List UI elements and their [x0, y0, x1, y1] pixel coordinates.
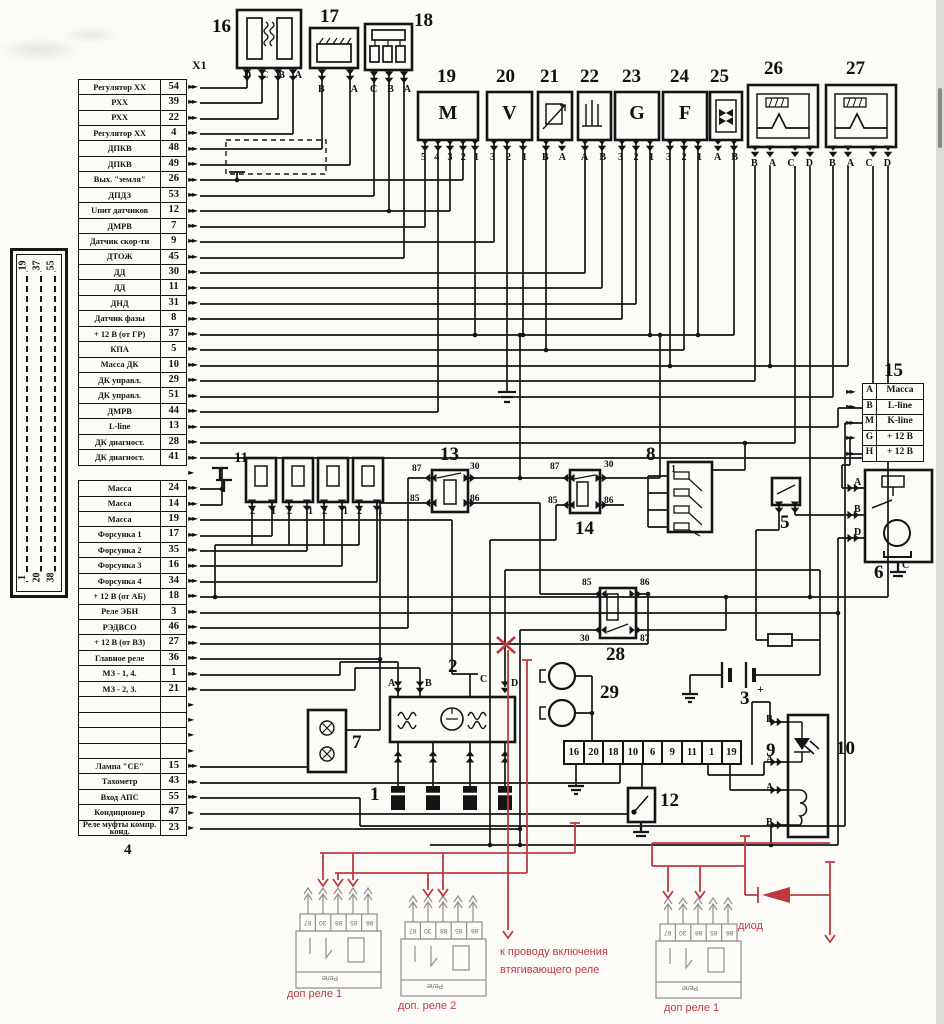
relay28-pin-86: 86 [640, 578, 650, 588]
ecu-row: Реле муфты компр. конд. 23 ► [78, 821, 202, 836]
wire-arrow-icon: ► [187, 806, 202, 821]
callout-5: 5 [780, 512, 790, 534]
ecu-row-pin: 8 [161, 310, 187, 327]
ecu-row-label: Масса [78, 511, 161, 528]
ecu-row-pin [161, 465, 187, 482]
ecu-row-label: ДК диагност. [78, 449, 161, 466]
annotation-relay1: доп реле 1 [287, 988, 342, 1000]
wire-arrow-icon: ►► [187, 559, 202, 574]
ecu-row: ДК диагност. 41 ►► [78, 451, 202, 466]
ecu-row: Тахометр 43 ►► [78, 775, 202, 790]
aux-relay-1-body-label: Реле [322, 974, 338, 981]
connector9-cell: 20 [583, 740, 605, 765]
pins-injector-4: 21 [357, 506, 383, 517]
ecu-row-pin: 3 [161, 604, 187, 621]
ecu-row: КПА 5 ►► [78, 342, 202, 357]
wire-arrow-icon: ►► [187, 481, 202, 496]
annotation-note-line2: втягивающего реле [500, 964, 599, 976]
wire-arrow-icon: ►► [187, 111, 202, 126]
ecu-row-label: Главное реле [78, 650, 161, 667]
ecu-row: ДК управл. 51 ►► [78, 389, 202, 404]
wire-arrow-icon: ► [187, 728, 202, 743]
ecu-row: ► [78, 713, 202, 728]
component-24-letter: F [663, 102, 707, 125]
ecu-row: + 12 В (от ВЗ) 27 ►► [78, 636, 202, 651]
ecu-row-label: L-line [78, 418, 161, 435]
wire-arrow-icon: ►► [187, 250, 202, 265]
ecu-row: РХХ 22 ►► [78, 111, 202, 126]
wire-arrow-icon: ►► [187, 636, 202, 651]
wire-arrow-icon: ►► [187, 497, 202, 512]
ecu-row: ДК диагност. 28 ►► [78, 435, 202, 450]
ecu-row-label: ДПКВ [78, 140, 161, 157]
ecu-row-label: Вход АПС [78, 789, 161, 806]
connector-pin-row [26, 266, 28, 582]
wire-arrow-icon: ►► [187, 234, 202, 249]
ecu-row: ► [78, 744, 202, 759]
callout-27: 27 [846, 58, 865, 80]
ecu-row: Регулятор XX 54 ►► [78, 80, 202, 95]
annotation-relay2: доп. реле 2 [398, 1000, 456, 1012]
pins-c25: AB [714, 152, 738, 163]
ecu-row: ДПДЗ 53 ►► [78, 188, 202, 203]
ecu-row-pin: 46 [161, 619, 187, 636]
wire-arrow-icon: ►► [187, 543, 202, 558]
connector9-cell: 11 [681, 740, 703, 765]
connector9-cell: 9 [661, 740, 683, 765]
ecu-row-pin: 47 [161, 804, 187, 821]
connector-num: 20 [32, 572, 43, 584]
ecu-row: Кондиционер 47 ► [78, 806, 202, 821]
ecu-row-label: Лампа "СЕ" [78, 758, 161, 775]
ecu-row-label: Датчик фазы [78, 310, 161, 327]
ecu-row: Лампа "СЕ" 15 ►► [78, 759, 202, 774]
ecu-row-pin: 41 [161, 449, 187, 466]
component-23-letter: G [615, 102, 659, 125]
ecu-row-pin: 9 [161, 233, 187, 250]
ecu-row: Масса 19 ►► [78, 512, 202, 527]
module2-pin-D: D [511, 678, 518, 689]
pins-c23: 321 [618, 152, 654, 163]
callout-22: 22 [580, 66, 599, 88]
ecu-row-label: ДПКВ [78, 156, 161, 173]
callout-20: 20 [496, 66, 515, 88]
callout-8: 8 [646, 444, 656, 466]
pump6-pin-A: A [854, 477, 861, 488]
pump6-pin-B: B [854, 504, 861, 515]
wire-arrow-icon: ► [187, 821, 202, 836]
ecu-row-pin: 10 [161, 357, 187, 374]
block15-row: ►► H + 12 В [846, 447, 924, 462]
wire-arrow-icon: ►► [187, 95, 202, 110]
pump6-pin-C: C [902, 560, 909, 571]
ecu-row-label: ДТОЖ [78, 249, 161, 266]
ecu-row-pin: 11 [161, 279, 187, 296]
relay28-pin-85: 85 [582, 578, 592, 588]
wire-arrow-icon: ►► [187, 358, 202, 373]
ecu-row-label: Форсунка 4 [78, 573, 161, 590]
callout-18: 18 [414, 10, 433, 32]
relay28-pin-30: 30 [580, 634, 590, 644]
callout-2: 2 [448, 656, 458, 678]
ecu-row: Uпит датчиков 12 ►► [78, 204, 202, 219]
wire-arrow-icon: ►► [187, 80, 202, 95]
block10-pin-B2: B [766, 817, 773, 828]
relay14-pin-85: 85 [548, 496, 558, 506]
aux-relay-2-pins: 8730888586 [405, 923, 482, 938]
ecu-row-label: Тахометр [78, 773, 161, 790]
connector-pin-row [54, 266, 56, 582]
callout-1: 1 [370, 784, 380, 806]
ecu-row: Масса 24 ►► [78, 481, 202, 496]
ecu-row-pin [161, 696, 187, 713]
ecu-row-label [78, 727, 161, 744]
ecu-row-pin: 28 [161, 434, 187, 451]
ecu-row-label [78, 696, 161, 713]
relay14-pin-87: 87 [550, 462, 560, 472]
ecu-row-label: Реле муфты компр. конд. [78, 820, 161, 837]
ecu-row-label: КПА [78, 341, 161, 358]
ecu-row-pin [161, 743, 187, 760]
wire-arrow-icon: ►► [187, 142, 202, 157]
ecu-row-pin: 23 [161, 820, 187, 837]
annotation-diode: диод [738, 920, 763, 932]
ecu-row: Датчик фазы 8 ►► [78, 312, 202, 327]
ecu-row: ► [78, 698, 202, 713]
ecu-row-label: Масса [78, 480, 161, 497]
connector9-cell: 10 [622, 740, 644, 765]
ecu-row-label: + 12 В (от ГР) [78, 326, 161, 343]
ecu-row-pin: 24 [161, 480, 187, 497]
wire-arrow-icon: ►► [187, 420, 202, 435]
callout-29: 29 [600, 682, 619, 704]
ecu-row: ДПКВ 49 ►► [78, 157, 202, 172]
ecu-row-label: ДД [78, 279, 161, 296]
wire-arrow-icon: ►► [187, 682, 202, 697]
ecu-row-label: Масса ДК [78, 357, 161, 374]
ecu-row: Форсунка 4 34 ►► [78, 574, 202, 589]
ecu-row-pin: 5 [161, 341, 187, 358]
ecu-row-label: Форсунка 1 [78, 526, 161, 543]
ecu-row-label: Датчик скор-ти [78, 233, 161, 250]
callout-24: 24 [670, 66, 689, 88]
ecu-row-pin: 26 [161, 171, 187, 188]
ecu-row-pin: 7 [161, 218, 187, 235]
ecu-row-label: МЗ - 1, 4. [78, 665, 161, 682]
ecu-row: ДМРВ 7 ►► [78, 219, 202, 234]
aux-relay-1-symbol [296, 888, 381, 988]
wire-arrow-icon: ►► [187, 373, 202, 388]
ecu-row: ДПКВ 48 ►► [78, 142, 202, 157]
wire-arrow-icon: ►► [187, 204, 202, 219]
pins-injector-2: 21 [287, 506, 313, 517]
callout-17: 17 [320, 6, 339, 28]
ecu-row-label [78, 743, 161, 760]
callout-3: 3 [740, 688, 750, 710]
block10-pin-A1: A [766, 754, 773, 765]
connector-num: 55 [46, 260, 57, 272]
ecu-row-pin: 22 [161, 110, 187, 127]
pins-c24: 321 [666, 152, 702, 163]
ecu-row: Масса ДК 10 ►► [78, 358, 202, 373]
ecu-row-label: Масса [78, 496, 161, 513]
wire-arrow-icon: ►► [187, 327, 202, 342]
ecu-row-label: Uпит датчиков [78, 202, 161, 219]
ecu-row-pin: 45 [161, 249, 187, 266]
connector-num: 37 [32, 260, 43, 272]
block15-pin: H [862, 445, 877, 462]
ecu-row-label: ДК управл. [78, 372, 161, 389]
wire-arrow-icon: ►► [187, 342, 202, 357]
pins-c27: BACD [829, 158, 891, 169]
ecu-row-pin: 43 [161, 773, 187, 790]
relay28-pin-87: 87 [640, 634, 650, 644]
ecu-row-label: РХХ [78, 110, 161, 127]
ecu-row: Вых. "земля" 26 ►► [78, 173, 202, 188]
ecu-row-label: Форсунка 2 [78, 542, 161, 559]
component-20-letter: V [487, 102, 532, 125]
relay13-pin-30: 30 [470, 462, 480, 472]
aux-relay-2-symbol [401, 896, 486, 996]
wire-arrow-icon: ►► [846, 400, 862, 415]
callout-28: 28 [606, 644, 625, 666]
ecu-row: + 12 В (от ГР) 37 ►► [78, 327, 202, 342]
ecu-row: МЗ - 1, 4. 1 ►► [78, 667, 202, 682]
ecu-row-pin: 27 [161, 634, 187, 651]
ecu-row-label: ДК диагност. [78, 434, 161, 451]
wire-arrow-icon: ►► [187, 219, 202, 234]
module2-pin-C: C [480, 674, 487, 685]
ecu-row-pin: 51 [161, 387, 187, 404]
wire-arrow-icon: ►► [187, 667, 202, 682]
ecu-row: ДД 30 ►► [78, 265, 202, 280]
ecu-row-pin: 35 [161, 542, 187, 559]
ecu-row: Форсунка 1 17 ►► [78, 528, 202, 543]
ecu-row-label [78, 465, 161, 482]
ecu-row-pin: 37 [161, 326, 187, 343]
ecu-row: ДНД 31 ►► [78, 296, 202, 311]
callout-16: 16 [212, 16, 231, 38]
wire-arrow-icon: ►► [187, 790, 202, 805]
pins-c20: 321 [490, 152, 527, 163]
ecu-row-pin: 39 [161, 94, 187, 111]
wire-arrow-icon: ►► [187, 126, 202, 141]
connector9-cell: 18 [602, 740, 624, 765]
callout-6: 6 [874, 562, 884, 584]
connector9-cell: 19 [721, 740, 743, 765]
connector9-cell: 16 [563, 740, 585, 765]
wire-arrow-icon: ► [187, 713, 202, 728]
pins-c17: BA [318, 84, 358, 95]
ecu-row-pin [161, 727, 187, 744]
wire-arrow-icon: ►► [187, 528, 202, 543]
ecu-row-label [78, 712, 161, 729]
ecu-row-pin: 1 [161, 665, 187, 682]
pins-c26: BACD [751, 158, 813, 169]
ecu-row-pin: 4 [161, 125, 187, 142]
connector-pin-row [40, 266, 42, 582]
wire-arrow-icon: ►► [187, 296, 202, 311]
callout-11: 11 [234, 450, 248, 467]
ecu-row: Масса 14 ►► [78, 497, 202, 512]
pins-c16: DCBA [244, 70, 302, 81]
aux-relay-3-body-label: Реле [682, 984, 698, 991]
ecu-row-label: Регулятор XX [78, 79, 161, 96]
aux-relay-1-pins: 8730888586 [300, 915, 377, 930]
wire-arrow-icon: ►► [187, 589, 202, 604]
module2-pin-A: A [388, 678, 395, 689]
wire-arrow-icon: ►► [187, 188, 202, 203]
ecu-row: Главное реле 36 ►► [78, 651, 202, 666]
ecu-row-pin: 21 [161, 681, 187, 698]
ecu-row-label: Кондиционер [78, 804, 161, 821]
ecu-row-pin: 36 [161, 650, 187, 667]
wire-arrow-icon: ►► [187, 312, 202, 327]
callout-13: 13 [440, 444, 459, 466]
ecu-row: ДМРВ 44 ►► [78, 404, 202, 419]
relay13-pin-85: 85 [410, 494, 420, 504]
ecu-row-pin: 12 [161, 202, 187, 219]
aux-relay-3-symbol [656, 898, 741, 998]
ecu-row-pin: 13 [161, 418, 187, 435]
annotation-note-line1: к проводу включения [500, 946, 608, 958]
callout-10: 10 [836, 738, 855, 760]
callout-7: 7 [352, 732, 362, 754]
annotation-relay3: доп реле 1 [664, 1002, 719, 1014]
ecu-row: ДД 11 ►► [78, 281, 202, 296]
wire-arrow-icon: ►► [187, 173, 202, 188]
ecu-row: ► [78, 728, 202, 743]
pins-c19: 54321 [421, 152, 479, 163]
connector-num: 1 [17, 574, 28, 581]
wire-arrow-icon: ► [187, 466, 202, 481]
pins-c21: BA [542, 152, 566, 163]
relay13-pin-86: 86 [470, 494, 480, 504]
component-19-letter: M [418, 102, 478, 125]
pump6-pin-D: D [854, 527, 861, 538]
wire-arrow-icon: ►► [187, 389, 202, 404]
ecu-row: РХХ 39 ►► [78, 95, 202, 110]
ecu-row: Датчик скор-ти 9 ►► [78, 234, 202, 249]
ecu-row-label: Реле ЭБН [78, 604, 161, 621]
wire-arrow-icon: ►► [187, 605, 202, 620]
wire-arrow-icon: ► [187, 744, 202, 759]
ecu-row: МЗ - 2, 3. 21 ►► [78, 682, 202, 697]
ecu-row-pin: 54 [161, 79, 187, 96]
wire-arrow-icon: ►► [846, 385, 862, 400]
ecu-row-pin: 18 [161, 588, 187, 605]
wire-arrow-icon: ►► [187, 759, 202, 774]
ecu-row-label: МЗ - 2, 3. [78, 681, 161, 698]
callout-14: 14 [575, 518, 594, 540]
callout-25: 25 [710, 66, 729, 88]
connector9-cell: 6 [642, 740, 664, 765]
aux-relay-3-pins: 8730888586 [660, 925, 737, 940]
callout-26: 26 [764, 58, 783, 80]
wire-arrow-icon: ►► [187, 775, 202, 790]
ecu-row-pin: 15 [161, 758, 187, 775]
aux-relay-2-body-label: Реле [427, 982, 443, 989]
ecu-row-label: Вых. "земля" [78, 171, 161, 188]
ecu-row-label: Регулятор XX [78, 125, 161, 142]
block10-pin-B1: B [766, 714, 773, 725]
wire-arrow-icon: ►► [846, 431, 862, 446]
block8-tag: 1 [671, 464, 676, 475]
wiring-diagram-canvas: Регулятор XX 54 ►► РХХ 39 ►► РХХ 22 ►► Р… [0, 0, 944, 1024]
wire-arrow-icon: ►► [187, 574, 202, 589]
wire-arrow-icon: ► [187, 698, 202, 713]
ecu-row-label: ДК управл. [78, 387, 161, 404]
wire-arrow-icon: ►► [187, 620, 202, 635]
ecu-row-pin: 48 [161, 140, 187, 157]
ecu-row-pin: 49 [161, 156, 187, 173]
module2-pin-B: B [425, 678, 432, 689]
battery-plus-sign: + [757, 682, 764, 697]
relay13-pin-87: 87 [412, 464, 422, 474]
pins-injector-3: 21 [322, 506, 348, 517]
ecu-row-pin [161, 712, 187, 729]
block15-label: + 12 В [877, 445, 924, 462]
ecu-row: ДК управл. 29 ►► [78, 373, 202, 388]
connector-num: 38 [46, 572, 57, 584]
pins-c22: AB [581, 152, 606, 163]
wire-arrow-icon: ►► [187, 157, 202, 172]
wire-arrow-icon: ►► [187, 512, 202, 527]
ecu-row-pin: 29 [161, 372, 187, 389]
callout-ecu: 4 [124, 842, 132, 859]
callout-12: 12 [660, 790, 679, 812]
wire-arrow-icon: ►► [846, 447, 862, 462]
ecu-row-label: РЭДВСО [78, 619, 161, 636]
callout-15: 15 [884, 360, 903, 382]
pins-injector-1: 21 [250, 506, 276, 517]
ecu-row-label: ДНД [78, 295, 161, 312]
diagnostic-block-15: ►► A Масса ►► B L-line ►► M K-line ►► G … [846, 385, 924, 462]
wire-arrow-icon: ►► [187, 404, 202, 419]
ecu-row-pin: 19 [161, 511, 187, 528]
connector-num: 19 [18, 260, 29, 272]
wire-arrow-icon: ►► [187, 451, 202, 466]
ecu-row-pin: 53 [161, 187, 187, 204]
ecu-row: Реле ЭБН 3 ►► [78, 605, 202, 620]
ecu-row-label: ДМРВ [78, 218, 161, 235]
block10-pin-A2: A [766, 782, 773, 793]
ecu-row: L-line 13 ►► [78, 420, 202, 435]
wire-arrow-icon: ►► [187, 265, 202, 280]
callout-21: 21 [540, 66, 559, 88]
connector9-cell: 1 [701, 740, 723, 765]
relay14-pin-86: 86 [604, 496, 614, 506]
ecu-row: Форсунка 2 35 ►► [78, 543, 202, 558]
ecu-row-pin: 14 [161, 496, 187, 513]
ecu-row-label: РХХ [78, 94, 161, 111]
wire-arrow-icon: ►► [187, 435, 202, 450]
ecu-row-label: + 12 В (от ВЗ) [78, 634, 161, 651]
wire-arrow-icon: ►► [187, 281, 202, 296]
callout-19: 19 [437, 66, 456, 88]
ecu-pin-table: Регулятор XX 54 ►► РХХ 39 ►► РХХ 22 ►► Р… [78, 80, 202, 836]
wire-arrow-icon: ►► [187, 651, 202, 666]
ecu-row-pin: 55 [161, 789, 187, 806]
ecu-row-label: ДД [78, 264, 161, 281]
ecu-row-label: ДМРВ [78, 403, 161, 420]
ecu-row: Форсунка 3 16 ►► [78, 559, 202, 574]
pins-c18: CBA [370, 84, 411, 95]
ecu-row-pin: 16 [161, 557, 187, 574]
ecu-row-pin: 31 [161, 295, 187, 312]
ecu-row: ► [78, 466, 202, 481]
ecu-row: Вход АПС 55 ►► [78, 790, 202, 805]
